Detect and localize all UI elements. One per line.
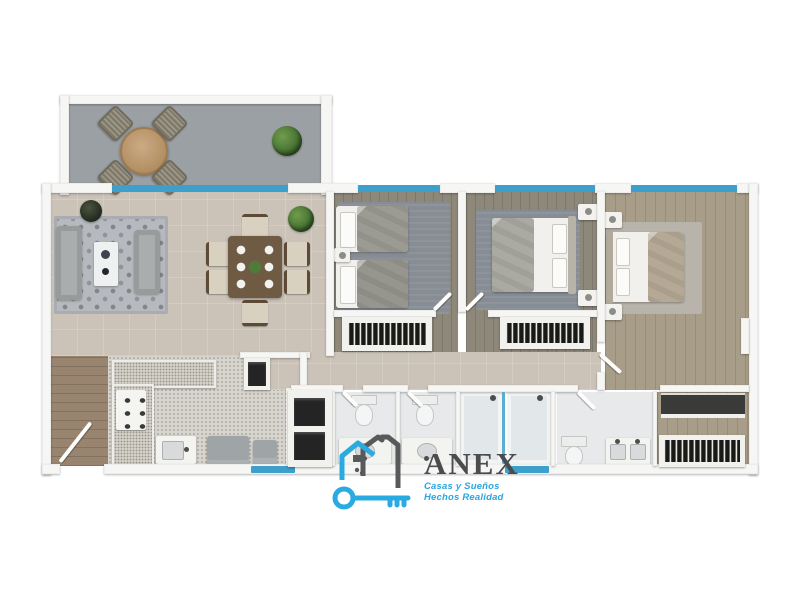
logo-tagline-line2: Hechos Realidad [424, 492, 504, 503]
terrace-sliding-door [112, 185, 288, 192]
master-headboard [606, 230, 613, 304]
bottom-wall [42, 464, 60, 474]
master-nightstand [602, 212, 622, 228]
dining-chair [242, 300, 268, 326]
master-double-vanity [606, 438, 650, 466]
hall-closet-interior [248, 362, 266, 386]
left-wall [42, 183, 51, 475]
bedroom2-window [495, 185, 595, 192]
terrace-wall-top [60, 95, 332, 104]
master-pillow [616, 238, 630, 266]
terrace-plant [272, 126, 302, 156]
sofa-right [134, 230, 160, 294]
master-toilet-bowl [565, 446, 583, 466]
master-duvet [648, 232, 684, 302]
bedroom2-nightstand [578, 204, 598, 220]
bedroom2-nightstand [578, 290, 598, 306]
wall-bedroom2-master [597, 191, 605, 342]
master-faucet [615, 439, 620, 444]
bed1-blanket [357, 206, 408, 252]
top-wall [288, 183, 358, 193]
shower1-head [490, 395, 496, 401]
master-nightstand [602, 304, 622, 320]
dining-plant [288, 206, 314, 232]
kitchen-faucet [184, 447, 189, 452]
coffee-table-decor [101, 250, 110, 259]
bedroom1-south-wall [334, 310, 436, 317]
living-plant [80, 200, 102, 222]
wall-bedroom1-bedroom2 [458, 191, 466, 312]
bathroom2-toilet-bowl [416, 404, 434, 426]
bedroom1-nightstand [334, 248, 350, 262]
kitchen-sink-unit [156, 436, 196, 464]
closet-north-wall [660, 385, 749, 392]
shower2-head [537, 395, 543, 401]
top-wall [42, 183, 112, 193]
logo-tagline-line1: Casas y Sueños [424, 481, 500, 492]
kitchen-sink-bowl [162, 441, 184, 460]
master-sink [610, 444, 626, 460]
bed2-duvet [492, 218, 534, 292]
stove [116, 390, 146, 430]
wall-dining-bedroom1 [326, 191, 334, 356]
linen-cabinet-shelf [294, 432, 325, 460]
dining-chair [284, 242, 310, 266]
logo-wordmark: ANEX [424, 448, 520, 479]
bedroom2-pillow [552, 258, 567, 288]
coffee-table [94, 242, 118, 286]
bed1-pillow [340, 212, 356, 248]
bedroom2-closet-hangers [506, 323, 584, 343]
dining-table [228, 236, 282, 298]
bed2-pillow [340, 266, 356, 304]
linen-cabinet-shelf [294, 398, 325, 426]
bathroom1-toilet-bowl [355, 404, 373, 426]
bath-divider [653, 391, 657, 466]
bedroom2-headboard [568, 216, 576, 294]
right-wall-notch [741, 318, 749, 354]
small-appliance [253, 440, 277, 466]
master-pillow [616, 268, 630, 296]
master-faucet [635, 439, 640, 444]
bedroom1-closet-hangers [348, 323, 426, 345]
bedroom2-pillow [552, 224, 567, 254]
master-window [631, 185, 737, 192]
top-wall [440, 183, 495, 193]
master-dresser [661, 393, 745, 418]
bedroom1-window [358, 185, 440, 192]
master-sink [630, 444, 646, 460]
entry-floor [51, 356, 108, 466]
bath-north-wall [363, 385, 408, 392]
coffee-table-decor [102, 268, 109, 275]
terrace-wall-right [321, 95, 332, 195]
wall-bedroom2-master-lower [597, 372, 605, 390]
bath-north-wall [428, 385, 578, 392]
master-closet-hangers [664, 440, 740, 462]
logo-tagline: Casas y Sueños Hechos Realidad [424, 481, 520, 503]
floor-plan: ANEX Casas y Sueños Hechos Realidad [0, 0, 800, 600]
kitchen-window [251, 466, 295, 473]
sofa-left [56, 226, 82, 300]
terrace-wall-left [60, 95, 69, 195]
house-and-key-icon [330, 432, 420, 514]
right-wall [749, 183, 758, 475]
bed2-blanket [357, 260, 408, 308]
dining-chair [284, 270, 310, 294]
anex-logo: ANEX Casas y Sueños Hechos Realidad [330, 432, 520, 514]
bedroom2-south-wall [488, 310, 597, 317]
bath-divider [551, 391, 555, 466]
